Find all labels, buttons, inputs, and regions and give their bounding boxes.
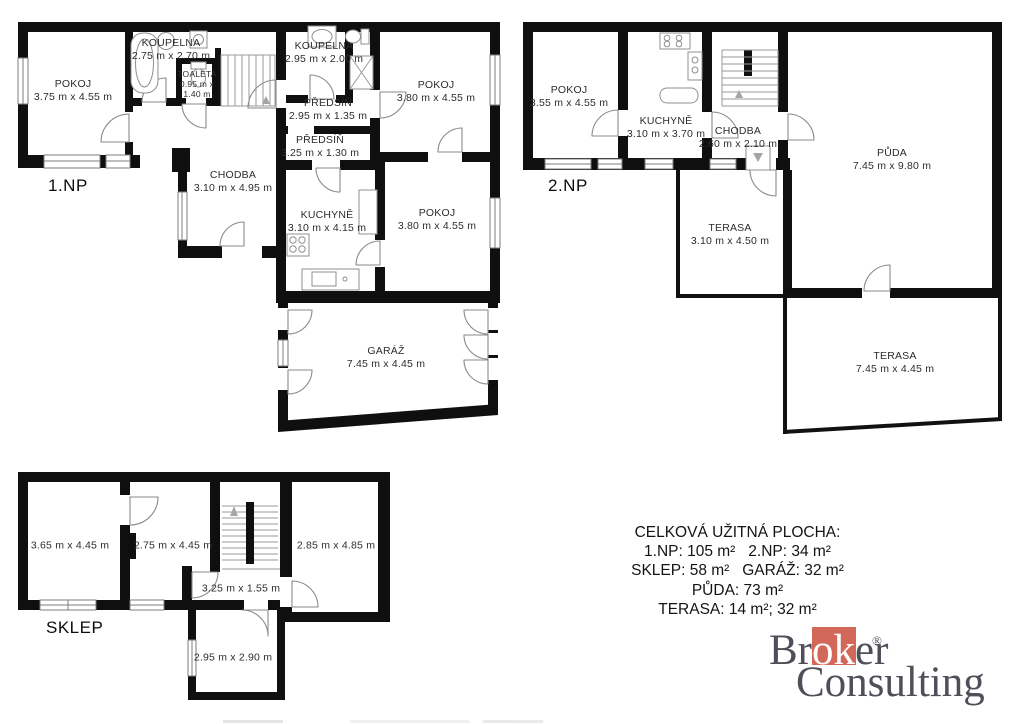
room-dims: 3.55 m x 4.55 m: [530, 97, 608, 110]
floorplan-page: POKOJ 3.75 m x 4.55 m KOUPELNA 2.75 m x …: [0, 0, 1024, 724]
bottom-edge-artifacts: [223, 720, 543, 723]
room-dims: 3.25 m x 1.30 m: [281, 147, 359, 160]
room-dims: 2.75 m x 2.70 m: [132, 50, 210, 63]
room-label-predsin1-np1: PŘEDSÍŇ 2.95 m x 1.35 m: [289, 97, 367, 123]
room-name: CHODBA: [699, 125, 777, 138]
room-dims: 7.45 m x 4.45 m: [347, 358, 425, 371]
room-dims: 2.95 m x 2.90 m: [194, 652, 272, 665]
room-label-sklep-room3: 2.85 m x 4.85 m: [297, 540, 375, 553]
room-name: POKOJ: [397, 79, 475, 92]
room-name: TERASA: [691, 222, 769, 235]
room-name: GARÁŽ: [347, 345, 425, 358]
room-label-pokoj-np1-left: POKOJ 3.75 m x 4.55 m: [34, 78, 112, 104]
room-label-pokoj-np1-topright: POKOJ 3.80 m x 4.55 m: [397, 79, 475, 105]
room-dims: 3.80 m x 4.55 m: [398, 220, 476, 233]
room-label-chodba-np1: CHODBA 3.10 m x 4.95 m: [194, 169, 272, 195]
room-label-puda-np2: PŮDA 7.45 m x 9.80 m: [853, 147, 931, 173]
room-name: KOUPELNA: [132, 37, 210, 50]
room-dims: 2.60 m x 2.10 m: [699, 138, 777, 151]
room-dims: 7.45 m x 4.45 m: [856, 363, 934, 376]
sklep-windows: [40, 600, 196, 676]
room-dims: 3.10 m x 3.70 m: [627, 128, 705, 141]
room-label-garaz-np1: GARÁŽ 7.45 m x 4.45 m: [347, 345, 425, 371]
room-label-terasa-mid-np2: TERASA 3.10 m x 4.50 m: [691, 222, 769, 248]
room-dims: 0.95 m x 1.40 m: [174, 79, 221, 99]
np1-stairs-icon: [221, 55, 275, 106]
room-dims: 2.95 m x 1.35 m: [289, 110, 367, 123]
room-label-sklep-room2: 2.75 m x 4.45 m: [134, 540, 212, 553]
room-name: TERASA: [856, 350, 934, 363]
room-dims: 2.85 m x 4.85 m: [297, 540, 375, 553]
room-label-sklep-corridor: 3.25 m x 1.55 m: [202, 583, 280, 596]
summary-title: CELKOVÁ UŽITNÁ PLOCHA:: [600, 523, 875, 542]
room-name: POKOJ: [398, 207, 476, 220]
floor-label-2np: 2.NP: [548, 176, 588, 196]
room-name: PŮDA: [853, 147, 931, 160]
room-name: POKOJ: [530, 84, 608, 97]
room-name: TOALETA: [174, 69, 221, 79]
room-dims: 3.75 m x 4.55 m: [34, 91, 112, 104]
area-summary: CELKOVÁ UŽITNÁ PLOCHA: 1.NP: 105 m² 2.NP…: [600, 523, 875, 619]
room-name: KUCHYNĚ: [627, 115, 705, 128]
room-dims: 3.80 m x 4.55 m: [397, 92, 475, 105]
room-label-kuchyne-np1: KUCHYNĚ 3.10 m x 4.15 m: [288, 209, 366, 235]
room-label-chodba-np2: CHODBA 2.60 m x 2.10 m: [699, 125, 777, 151]
room-label-sklep-room4: 2.95 m x 2.90 m: [194, 652, 272, 665]
room-label-kuchyne-np2: KUCHYNĚ 3.10 m x 3.70 m: [627, 115, 705, 141]
room-dims: 2.75 m x 4.45 m: [134, 540, 212, 553]
room-name: CHODBA: [194, 169, 272, 182]
room-label-sklep-room1: 3.65 m x 4.45 m: [31, 540, 109, 553]
floor-label-1np: 1.NP: [48, 176, 88, 196]
room-name: KOUPELNA: [285, 40, 363, 53]
room-dims: 3.10 m x 4.95 m: [194, 182, 272, 195]
room-name: PŘEDSÍŇ: [281, 134, 359, 147]
summary-line: TERASA: 14 m²; 32 m²: [600, 600, 875, 619]
room-dims: 3.10 m x 4.15 m: [288, 222, 366, 235]
room-dims: 2.95 m x 2.00 m: [285, 53, 363, 66]
room-dims: 3.10 m x 4.50 m: [691, 235, 769, 248]
room-label-predsin2-np1: PŘEDSÍŇ 3.25 m x 1.30 m: [281, 134, 359, 160]
room-dims: 3.65 m x 4.45 m: [31, 540, 109, 553]
room-label-pokoj-np1-bottomright: POKOJ 3.80 m x 4.55 m: [398, 207, 476, 233]
room-name: POKOJ: [34, 78, 112, 91]
room-dims: 3.25 m x 1.55 m: [202, 583, 280, 596]
summary-line: PŮDA: 73 m²: [600, 581, 875, 600]
floor-label-sklep: SKLEP: [46, 618, 103, 638]
room-label-koupelna-np1: KOUPELNA 2.75 m x 2.70 m: [132, 37, 210, 63]
room-label-toaleta-np1: TOALETA 0.95 m x 1.40 m: [174, 69, 221, 99]
room-name: KUCHYNĚ: [288, 209, 366, 222]
room-label-terasa-bottom-np2: TERASA 7.45 m x 4.45 m: [856, 350, 934, 376]
room-label-pokoj-np2: POKOJ 3.55 m x 4.55 m: [530, 84, 608, 110]
summary-line: 1.NP: 105 m² 2.NP: 34 m²: [600, 542, 875, 561]
room-name: PŘEDSÍŇ: [289, 97, 367, 110]
room-dims: 7.45 m x 9.80 m: [853, 160, 931, 173]
summary-line: SKLEP: 58 m² GARÁŽ: 32 m²: [600, 561, 875, 580]
room-label-koupelna2-np1: KOUPELNA 2.95 m x 2.00 m: [285, 40, 363, 66]
